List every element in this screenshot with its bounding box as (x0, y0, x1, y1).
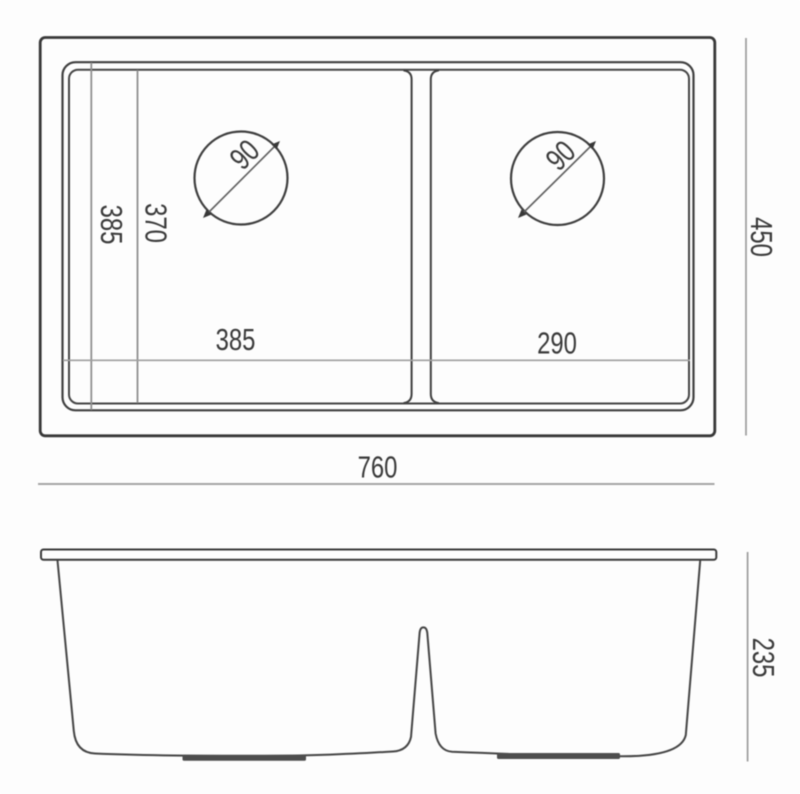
svg-text:450: 450 (744, 217, 779, 257)
svg-text:760: 760 (358, 450, 398, 485)
svg-text:235: 235 (746, 638, 781, 678)
svg-text:385: 385 (216, 322, 256, 357)
svg-text:385: 385 (94, 205, 129, 245)
svg-text:370: 370 (139, 203, 174, 243)
svg-text:290: 290 (537, 326, 577, 361)
